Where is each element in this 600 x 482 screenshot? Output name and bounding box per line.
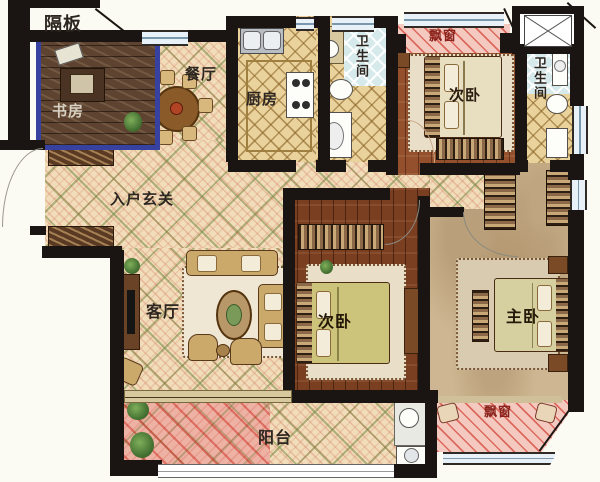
wall-master-door-stub [430,207,464,217]
label-partition: 隔板 [44,10,82,36]
washing-machine-drum [404,448,419,463]
kitchen-sink-bowl [263,31,281,50]
label-master: 主卧 [506,303,540,327]
bath-top-toilet [329,79,353,100]
dining-chair [158,130,173,145]
foyer-cabinet-lower [48,226,114,247]
balcony-sliding-door [124,390,292,403]
label-entry: 入户玄关 [110,188,174,209]
sofa-main [186,250,278,276]
label-bay-top: 飘窗 [429,25,457,44]
label-bath-top: 卫生间 [352,34,371,79]
balcony-plant [130,432,154,458]
wall-entry-bottom-stub [30,226,46,235]
bath-right-window [572,106,588,154]
bath-right-shower [546,128,568,158]
bath-right-sink [554,60,566,72]
dining-chair [182,126,197,141]
wall-bed-bath-right [515,48,527,165]
bed-top-wardrobe [436,138,504,160]
study-plant [124,112,142,132]
bed-top-nightstand [396,52,410,68]
balcony-railing [158,464,394,478]
dining-window [142,30,188,46]
master-vestibule-floor [430,175,485,209]
wall-bath-right-bottom-l [515,160,528,172]
label-bed-top: 次卧 [449,84,481,105]
wall-balcony-corner [110,460,162,476]
kitchen-sink-bowl [243,31,261,50]
kitchen-stove [286,72,314,118]
wall-bed-mid-left [283,188,295,398]
label-bed-mid: 次卧 [318,308,352,332]
wall-top-dining [188,30,228,42]
tv-screen [127,290,135,334]
shaft-duct-box [524,15,572,47]
dining-chair [198,98,213,113]
wall-right-upper [570,44,584,106]
bed-mid-wardrobe [298,224,384,250]
wall-balcony-bottom-stub [393,464,437,478]
label-study: 书房 [52,100,84,121]
master-window [570,180,587,210]
wall-right-lower [568,210,584,412]
wall-left-lower [110,250,124,472]
kitchen-window [296,17,314,31]
dining-centerpiece [170,102,183,115]
label-living: 客厅 [146,298,180,322]
foyer-plant [320,260,333,274]
armchair [230,338,262,365]
side-table [216,344,230,357]
wall-bed-top-bottom [420,163,520,175]
label-balcony: 阳台 [258,424,292,448]
label-bath-right: 卫生间 [530,56,549,101]
label-bay-bottom: 飘窗 [484,401,512,420]
label-dining: 餐厅 [185,63,217,84]
wall-right-stub2 [568,163,584,180]
master-nightstand [548,354,568,372]
bay-window-bottom-glass [443,452,555,465]
wall-left-upper [8,0,30,148]
armchair [188,334,218,361]
bath-top-window [332,16,374,32]
wall-bay-left-stub [392,34,406,53]
wall-bed-mid-top [295,188,390,200]
wall-bath-bottom-l [316,160,346,172]
wall-bath-bottom-r [368,160,398,172]
wall-kitchen-bath [318,16,330,162]
entry-door-arc [2,148,43,227]
wall-balcony-top [290,390,438,403]
wall-kitchen-bottom [228,160,296,172]
label-kitchen: 厨房 [246,88,278,109]
wall-bed-mid-right [418,196,430,398]
master-bench [472,290,489,342]
master-nightstand [548,256,568,274]
living-plant [124,258,140,274]
coffee-table-decor [226,304,242,326]
wall-dining-kitchen [226,16,238,162]
laundry-basin [399,408,419,428]
floor-plan: 隔板 书房 餐厅 厨房 卫生间 飘窗 次卧 卫生间 入户玄关 客厅 次卧 主卧 … [0,0,600,482]
dining-chair [160,70,175,85]
wall-kitchen-top [228,16,296,28]
balcony-plant [127,400,149,420]
study-desk-pad [70,74,94,94]
bath-right-toilet [546,94,568,114]
